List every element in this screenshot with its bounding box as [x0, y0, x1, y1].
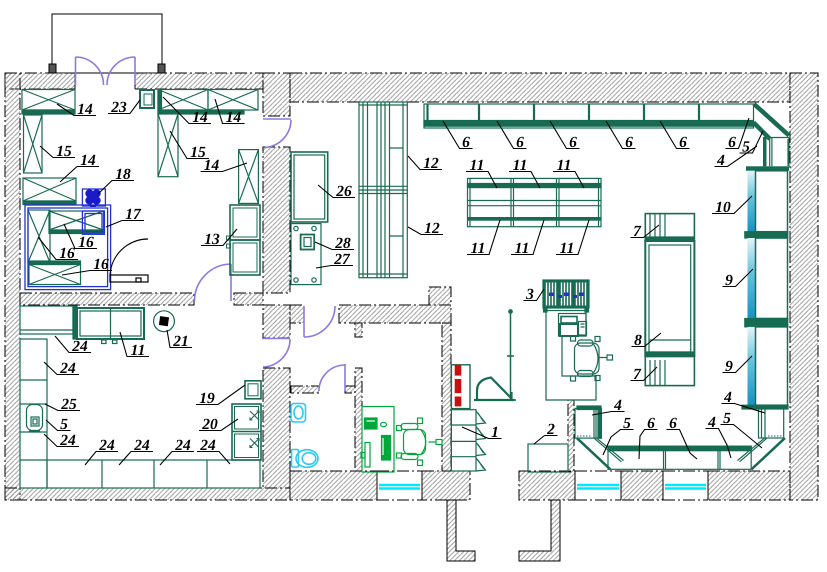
svg-text:10: 10 [715, 199, 731, 216]
svg-text:23: 23 [110, 99, 127, 116]
svg-text:24: 24 [98, 437, 115, 454]
svg-text:26: 26 [335, 183, 352, 200]
svg-text:4: 4 [716, 152, 725, 169]
svg-text:6: 6 [625, 134, 633, 151]
svg-text:21: 21 [172, 333, 189, 350]
svg-text:13: 13 [204, 231, 220, 248]
svg-text:5: 5 [723, 410, 731, 427]
svg-text:14: 14 [77, 101, 93, 118]
svg-text:9: 9 [725, 358, 733, 375]
svg-text:4: 4 [707, 414, 716, 431]
svg-text:5: 5 [742, 139, 750, 156]
svg-text:6: 6 [569, 134, 577, 151]
svg-text:6: 6 [462, 134, 470, 151]
svg-text:27: 27 [333, 251, 351, 268]
svg-text:11: 11 [560, 240, 575, 257]
svg-text:16: 16 [59, 245, 75, 262]
svg-text:11: 11 [557, 157, 572, 174]
svg-text:24: 24 [59, 360, 76, 377]
svg-text:11: 11 [131, 342, 146, 359]
svg-text:16: 16 [93, 256, 109, 273]
svg-text:28: 28 [334, 235, 351, 252]
svg-text:19: 19 [199, 390, 215, 407]
svg-text:14: 14 [226, 109, 242, 126]
svg-text:24: 24 [199, 437, 216, 454]
svg-text:12: 12 [423, 155, 439, 172]
svg-text:3: 3 [525, 286, 534, 303]
svg-text:17: 17 [125, 206, 142, 223]
svg-text:1: 1 [491, 424, 499, 441]
svg-text:11: 11 [513, 157, 528, 174]
svg-text:11: 11 [471, 240, 486, 257]
svg-text:5: 5 [60, 416, 68, 433]
svg-text:2: 2 [546, 421, 555, 438]
svg-text:4: 4 [613, 397, 622, 414]
svg-text:6: 6 [516, 134, 524, 151]
svg-text:15: 15 [56, 143, 72, 160]
svg-text:14: 14 [80, 152, 96, 169]
svg-text:20: 20 [201, 416, 218, 433]
svg-text:25: 25 [60, 396, 77, 413]
svg-text:24: 24 [71, 338, 88, 355]
svg-text:12: 12 [424, 220, 440, 237]
svg-text:9: 9 [725, 272, 733, 289]
svg-text:4: 4 [723, 389, 732, 406]
svg-text:24: 24 [174, 437, 191, 454]
svg-text:24: 24 [59, 432, 76, 449]
svg-text:6: 6 [647, 415, 655, 432]
svg-text:14: 14 [192, 109, 208, 126]
svg-text:14: 14 [204, 157, 220, 174]
svg-text:8: 8 [634, 332, 642, 349]
svg-text:7: 7 [633, 223, 642, 240]
svg-text:6: 6 [728, 134, 736, 151]
svg-text:18: 18 [115, 166, 131, 183]
svg-text:6: 6 [669, 415, 677, 432]
svg-text:6: 6 [679, 134, 687, 151]
svg-text:11: 11 [515, 240, 530, 257]
svg-text:11: 11 [470, 157, 485, 174]
svg-text:24: 24 [133, 437, 150, 454]
svg-text:16: 16 [78, 234, 94, 251]
svg-text:5: 5 [623, 415, 631, 432]
svg-text:7: 7 [633, 366, 642, 383]
